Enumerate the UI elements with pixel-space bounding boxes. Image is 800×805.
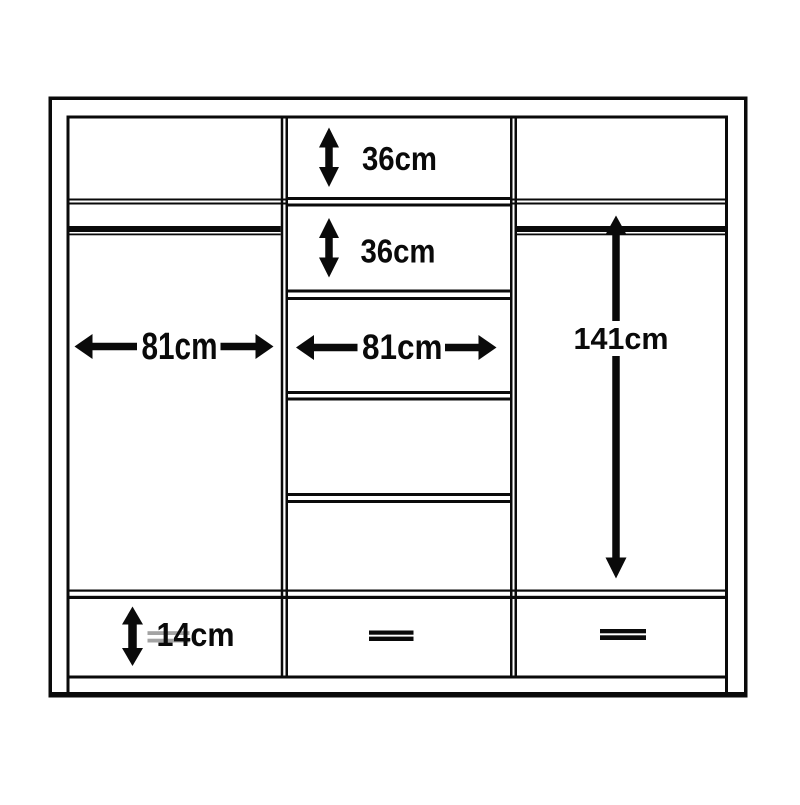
svg-text:81cm: 81cm xyxy=(362,328,443,367)
svg-text:14cm: 14cm xyxy=(157,616,235,653)
svg-text:36cm: 36cm xyxy=(362,141,437,178)
svg-text:36cm: 36cm xyxy=(361,234,436,271)
svg-text:81cm: 81cm xyxy=(142,326,218,368)
svg-text:141cm: 141cm xyxy=(574,322,669,356)
